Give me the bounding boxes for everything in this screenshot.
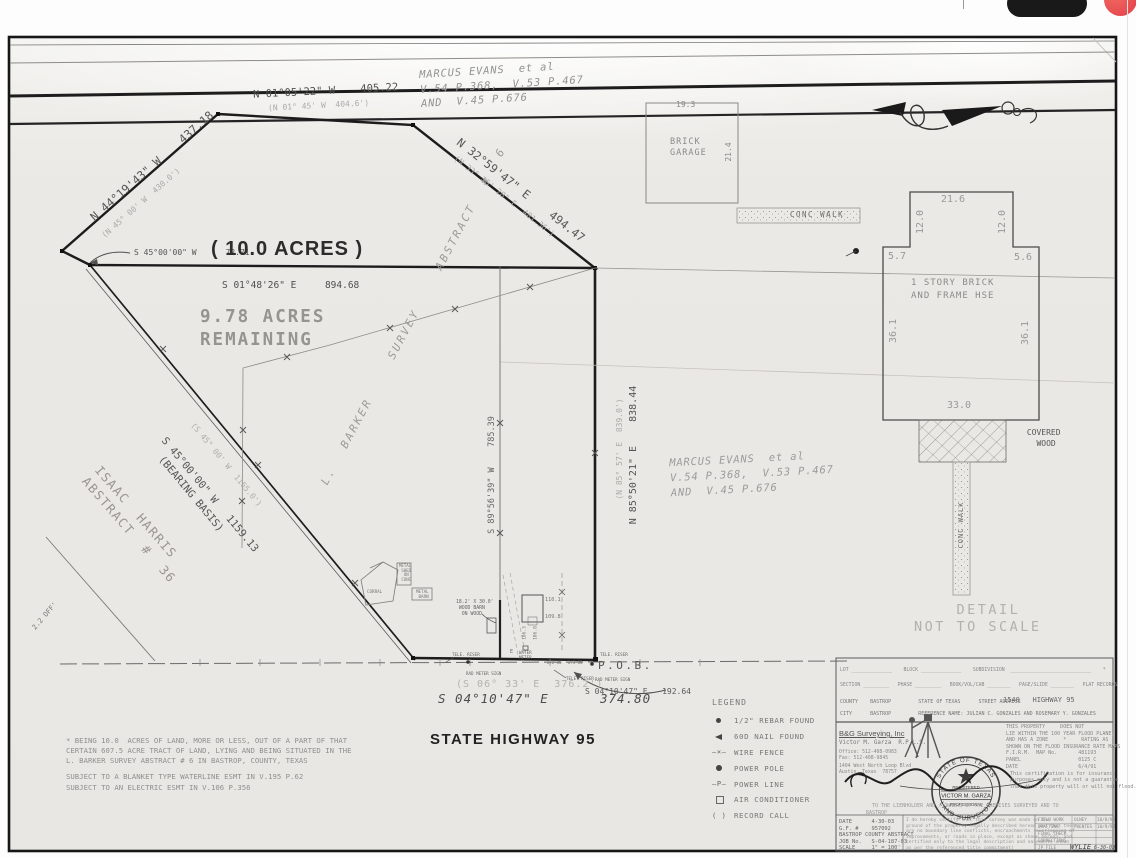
house-dim-bottom: 33.0 [947, 400, 971, 412]
easement-notes: SUBJECT TO A BLANKET TYPE WATERLINE ESMT… [66, 771, 303, 793]
titleblock-row-city: CITY BASTROP REFERENCE NAME: JULIAN C. G… [840, 711, 1096, 717]
garage-label: BRICK GARAGE [670, 137, 707, 159]
metal-shed-label: METAL SHED ON CONC [399, 564, 411, 582]
wood-barn-label: 18.2' X 30.0' WOOD BARN ON WOOD [456, 600, 494, 618]
rad-meter-label-2: RAD METER SIGN [595, 677, 630, 682]
legend: LEGEND 1/2" REBAR FOUND 60D NAIL FOUND —… [712, 698, 815, 824]
pen-mark [872, 102, 1036, 129]
bearing-interior-north: S 01°48'26" E 894.68 [222, 280, 359, 291]
titleblock-row-county: COUNTY BASTROP STATE OF TEXAS STREET ADD… [840, 699, 1021, 705]
titleblock-row-lot: LOT ______________ BLOCK ______________ … [840, 668, 1106, 674]
garage-depth-dim: 21.4 [724, 142, 734, 161]
job-info-block: DATE 4-30-03 G.F. # 957092 BASTROP COUNT… [839, 819, 914, 852]
firm-contact: Office: 512-408-0983 Fax: 512-408-9845 [839, 750, 897, 762]
point-of-beginning-label: P.O.B. [598, 659, 653, 672]
certified-to-line: TO THE LIENHOLDER AND / OWNERS OF THE PR… [872, 803, 1059, 809]
plat-linework: STATE OF TEXAS LAND SURVEYOR REGISTERED … [0, 0, 1136, 858]
legend-item-record: ( ) RECORD CALL [712, 808, 815, 824]
table-cell: JP FILE [1038, 846, 1056, 851]
house-dim-left-upper: 12.0 [915, 210, 927, 234]
house-dim-left-jog: 5.7 [888, 251, 906, 263]
legend-title: LEGEND [712, 698, 815, 707]
table-cell: OLNEY [1074, 818, 1087, 823]
firm-name: B&G Surveying, Inc [839, 729, 904, 738]
on-line-note-1: 2.2 ON [547, 661, 561, 666]
bearing-east-line: N 85°50'21" E 838.44 [628, 386, 640, 524]
legend-item-rebar: 1/2" REBAR FOUND [712, 713, 815, 729]
detail-structures [646, 103, 1039, 595]
conc-walk-vertical-label: CONC WALK [957, 502, 965, 549]
legend-item-fence: —✕— WIRE FENCE [712, 745, 815, 761]
table-cell: FIELD WORK [1038, 818, 1064, 823]
conc-walk-label: CONC WALK [790, 210, 844, 219]
table-cell: DRAFTING [1038, 825, 1059, 830]
house-dim-right: 36.1 [1020, 321, 1032, 345]
surveyor-name: Victor M. Garza R.P.L.S. [839, 740, 926, 747]
power-pole-icon [716, 765, 722, 771]
tele-riser-label-3: TELE. RISER [600, 652, 628, 657]
owner-label-east: MARCUS EVANS et al V.54 P.368, V.53 P.46… [669, 448, 835, 502]
covered-wood-label: COVERED WOOD [1022, 428, 1061, 449]
table-cell: 10/8/98 [1097, 818, 1115, 823]
legend-item-label: 1/2" REBAR FOUND [734, 716, 815, 725]
legend-item-label: POWER POLE [734, 764, 785, 773]
surveyor-tripod-icon [905, 714, 940, 758]
metal-barn-label: METAL BARN [416, 589, 429, 599]
flood-statement: THIS PROPERTY DOES NOT LIE WITHIN THE 10… [1006, 724, 1120, 770]
house-dim-top: 21.6 [941, 194, 965, 206]
bearing-east-record: (N 85° 57' E 839.0') [615, 398, 625, 499]
legend-item-label: RECORD CALL [734, 811, 790, 820]
rebar-icon [716, 718, 721, 723]
titleblock-street-address: 1540 HIGHWAY 95 [1003, 696, 1075, 704]
table-cell: FINAL CHECK [1038, 832, 1066, 837]
bearing-interior-fence: S 89°56'39" W 785.39 [487, 416, 497, 534]
table-cell: 10/9/98 [1097, 825, 1115, 830]
legend-item-powerline: –P– POWER LINE [712, 776, 815, 792]
rad-meter-label-1: RAD METER SIGN [466, 671, 501, 676]
table-cell: CORRECTIONS [1038, 839, 1066, 844]
on-line-note-2: 2.3 ON [568, 661, 582, 666]
legend-item-label: POWER LINE [734, 780, 785, 789]
titleblock-row-section: SECTION _________ PHASE _________ BOOK/V… [840, 683, 1117, 689]
record-call-icon: ( ) [712, 812, 734, 820]
tract-area-label: ( 10.0 ACRES ) [211, 237, 363, 261]
legend-item-label: AIR CONDITIONER [734, 795, 810, 804]
flood-note: This certification is for insurance purp… [1010, 771, 1136, 790]
air-conditioner-icon [716, 796, 724, 804]
house-label: 1 STORY BRICK AND FRAME HSE [911, 277, 994, 303]
legend-item-ac: AIR CONDITIONER [712, 792, 815, 808]
certified-to-county: BASTROP [866, 810, 887, 816]
detail-title: DETAIL NOT TO SCALE [914, 602, 1042, 636]
legend-item-nail: 60D NAIL FOUND [712, 729, 815, 745]
seal-name-text: VICTOR M. GARZA [941, 794, 991, 800]
legend-item-label: WIRE FENCE [734, 748, 785, 757]
tele-riser-label-2: TELE. RISER [566, 676, 594, 681]
well-dim-3: 106.3 [522, 626, 527, 640]
legal-description-note: * BEING 10.0 ACRES OF LAND, MORE OR LESS… [66, 736, 352, 766]
corral-label: CORRAL [367, 589, 382, 594]
table-cell-handwritten: WYLIE [1070, 843, 1091, 851]
well-dim-2: 109.8 [545, 614, 561, 620]
legend-item-pole: POWER POLE [712, 760, 815, 776]
remaining-area-label: 9.78 ACRES REMAINING [200, 306, 325, 352]
house-dim-right-jog: 5.6 [1014, 252, 1032, 264]
table-cell: FUENTES [1074, 825, 1092, 830]
legend-item-label: 60D NAIL FOUND [734, 732, 805, 741]
house-dim-right-upper: 12.0 [997, 210, 1009, 234]
bearing-south-line2: S 04°10'47" E 192.64 [585, 687, 691, 697]
state-highway-label: STATE HIGHWAY 95 [430, 731, 596, 749]
firm-address: 1404 West North Loop Blvd Austin, Texas … [839, 764, 911, 776]
water-meter-label: WATER METER [519, 651, 532, 661]
garage-width-dim: 19.3 [676, 100, 695, 110]
nail-icon [715, 734, 722, 740]
wire-fence-icon: —✕— [712, 748, 734, 756]
well-dim-1: 110.1 [545, 597, 561, 603]
well-dim-4: 106.8 [533, 626, 538, 640]
table-cell-handwritten: 6-30-03 [1094, 845, 1115, 851]
power-line-icon: –P– [712, 780, 734, 788]
screenshot-root: STATE OF TEXAS LAND SURVEYOR REGISTERED … [0, 0, 1136, 858]
e-mark: E [510, 649, 513, 655]
bottom-road-line [60, 659, 850, 666]
tele-riser-label-1: TELE. RISER [452, 652, 480, 657]
house-dim-left: 36.1 [888, 319, 900, 343]
